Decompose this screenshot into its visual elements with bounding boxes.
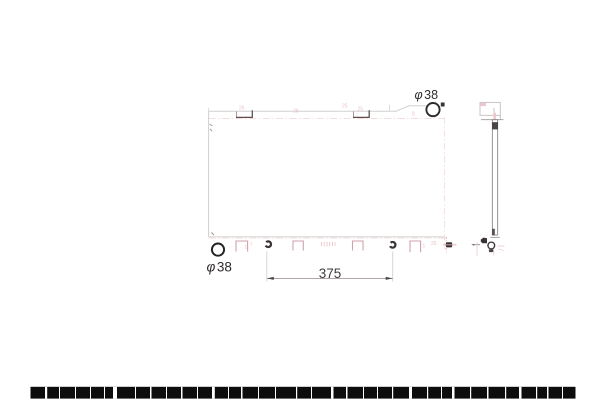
svg-text:26: 26: [293, 109, 299, 115]
svg-text:φ38: φ38: [207, 259, 232, 274]
svg-text:1: 1: [423, 244, 426, 250]
svg-text:25: 25: [358, 107, 364, 113]
svg-text:375: 375: [319, 266, 342, 281]
svg-text:φ38: φ38: [415, 88, 439, 102]
svg-text:25: 25: [342, 104, 348, 110]
svg-text:26: 26: [239, 106, 245, 112]
svg-text:8: 8: [412, 112, 415, 118]
svg-text:25: 25: [431, 241, 437, 247]
svg-text:1: 1: [245, 245, 248, 251]
